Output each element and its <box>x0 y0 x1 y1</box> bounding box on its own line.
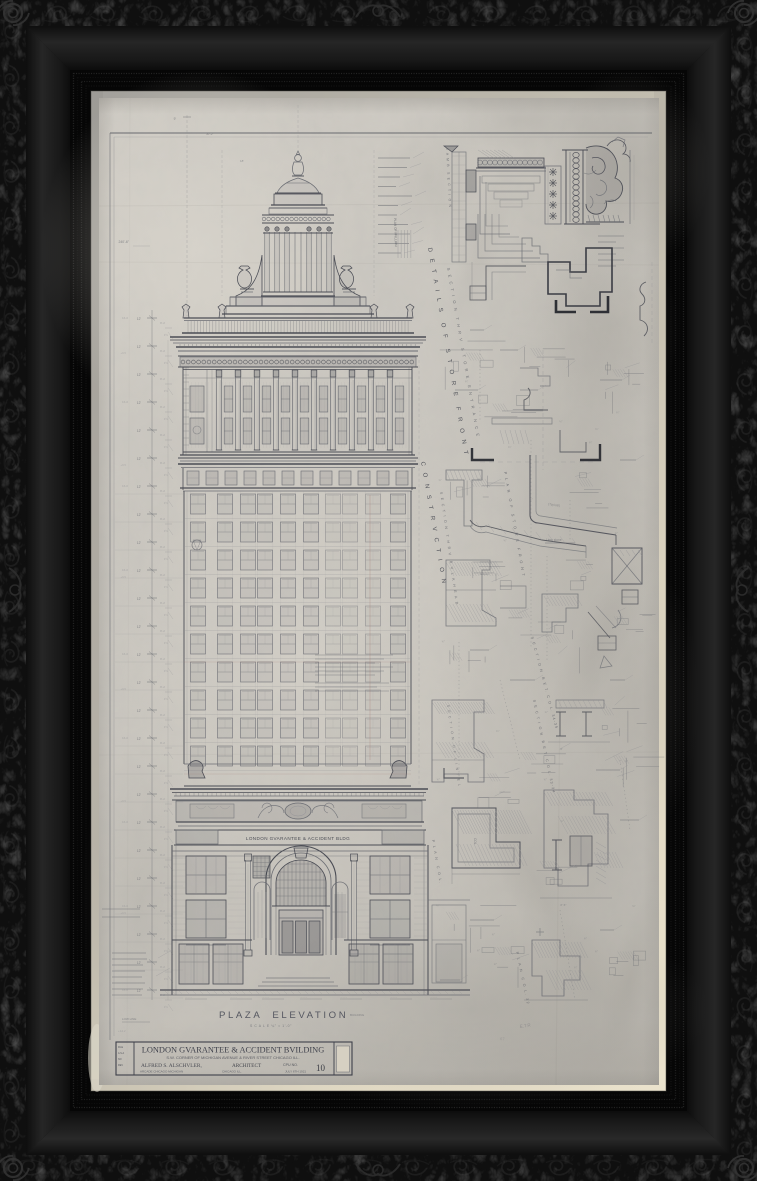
svg-text:12': 12' <box>137 373 142 377</box>
svg-text:9'-2: 9'-2 <box>160 825 165 829</box>
svg-text:9'-2: 9'-2 <box>160 405 165 409</box>
svg-text:+9.5: +9.5 <box>120 463 126 467</box>
svg-text:18': 18' <box>240 159 244 163</box>
svg-text:1½: 1½ <box>164 781 169 785</box>
svg-text:12': 12' <box>137 933 142 937</box>
svg-text:¼": ¼" <box>442 640 445 644</box>
svg-text:BUILDING: BUILDING <box>350 1013 365 1017</box>
svg-text:9'-2: 9'-2 <box>160 657 165 661</box>
svg-text:1½: 1½ <box>164 753 169 757</box>
svg-text:CPU NO.: CPU NO. <box>283 1063 298 1067</box>
svg-text:12': 12' <box>137 429 142 433</box>
svg-text:COL: COL <box>473 838 477 845</box>
svg-text:9'-2: 9'-2 <box>160 881 165 885</box>
svg-text:1½: 1½ <box>164 445 169 449</box>
svg-text:..........: .......... <box>300 996 307 999</box>
svg-text:12': 12' <box>137 877 142 881</box>
svg-text:9'-2: 9'-2 <box>160 629 165 633</box>
svg-text:12': 12' <box>137 849 142 853</box>
svg-text:+9.5: +9.5 <box>120 687 126 691</box>
svg-text:1½: 1½ <box>164 529 169 533</box>
svg-text:16-0: 16-0 <box>122 652 128 656</box>
svg-text:10: 10 <box>316 1063 326 1073</box>
svg-text:ALFRED S. ALSCHVLER,: ALFRED S. ALSCHVLER, <box>141 1063 202 1069</box>
svg-text:¼": ¼" <box>504 539 507 543</box>
svg-text:16-0: 16-0 <box>122 400 128 404</box>
svg-text:12': 12' <box>137 765 142 769</box>
svg-text:CHICAGO ILL.: CHICAGO ILL. <box>222 1070 242 1074</box>
svg-text:NO: NO <box>118 1058 122 1061</box>
svg-text:LONDON GVARANTEE & ACCIDENT BL: LONDON GVARANTEE & ACCIDENT BLDG <box>246 836 350 841</box>
svg-text:¼": ¼" <box>436 903 439 907</box>
svg-text:9'-2: 9'-2 <box>160 769 165 773</box>
svg-text:1½: 1½ <box>164 501 169 505</box>
svg-text:+9.5: +9.5 <box>120 799 126 803</box>
svg-text:S C A L E ¼" = 1'-0": S C A L E ¼" = 1'-0" <box>250 1024 292 1028</box>
svg-text:1½: 1½ <box>164 893 169 897</box>
svg-text:12': 12' <box>137 569 142 573</box>
svg-text:9': 9' <box>174 117 177 121</box>
svg-text:¼": ¼" <box>615 531 618 535</box>
svg-text:30'-2": 30'-2" <box>206 132 214 136</box>
svg-text:16-0: 16-0 <box>122 736 128 740</box>
svg-text:+9.5: +9.5 <box>120 911 126 915</box>
svg-text:9'-2: 9'-2 <box>160 797 165 801</box>
svg-text:12': 12' <box>137 821 142 825</box>
svg-text:ARCADE CHICAGO MICHIGAN: ARCADE CHICAGO MICHIGAN <box>140 1070 183 1074</box>
svg-text:16-0: 16-0 <box>122 568 128 572</box>
svg-text:12': 12' <box>137 653 142 657</box>
svg-text:9'-2: 9'-2 <box>160 461 165 465</box>
svg-text:12': 12' <box>137 457 142 461</box>
svg-text:9'-2: 9'-2 <box>160 937 165 941</box>
svg-text:9'-2: 9'-2 <box>160 909 165 913</box>
svg-text:1½: 1½ <box>164 585 169 589</box>
svg-text:1½: 1½ <box>164 333 169 337</box>
svg-text:12': 12' <box>137 541 142 545</box>
svg-text:JULY 6TH 1921: JULY 6TH 1921 <box>285 1070 306 1074</box>
svg-text:PLAZA ELEVATION: PLAZA ELEVATION <box>219 1010 348 1021</box>
svg-text:REV: REV <box>118 1064 123 1067</box>
svg-text:1½: 1½ <box>164 837 169 841</box>
svg-text:1½: 1½ <box>164 557 169 561</box>
svg-text:9'-2: 9'-2 <box>160 545 165 549</box>
svg-text:16-0: 16-0 <box>122 904 128 908</box>
svg-text:¼": ¼" <box>584 937 587 941</box>
svg-text:1½: 1½ <box>164 865 169 869</box>
svg-text:9'-2: 9'-2 <box>160 489 165 493</box>
svg-text:12': 12' <box>137 905 142 909</box>
svg-text:1½: 1½ <box>164 725 169 729</box>
svg-text:12': 12' <box>137 401 142 405</box>
svg-text:¼": ¼" <box>477 949 480 953</box>
svg-text:1½: 1½ <box>164 613 169 617</box>
svg-text:9'-2: 9'-2 <box>160 685 165 689</box>
svg-text:9'-2: 9'-2 <box>160 349 165 353</box>
svg-text:¼": ¼" <box>530 497 533 501</box>
svg-text:¼": ¼" <box>545 710 548 714</box>
svg-text:¼": ¼" <box>560 419 563 423</box>
svg-text:..........: .......... <box>340 996 347 999</box>
svg-text:1½: 1½ <box>164 697 169 701</box>
svg-text:12': 12' <box>137 513 142 517</box>
svg-text:ARCHITECT: ARCHITECT <box>232 1063 262 1069</box>
svg-text:¼": ¼" <box>439 478 442 482</box>
svg-text:9'-2: 9'-2 <box>160 377 165 381</box>
svg-text:9'-2: 9'-2 <box>160 741 165 745</box>
svg-text:240'-6": 240'-6" <box>118 240 129 244</box>
svg-text:¼": ¼" <box>633 904 636 908</box>
svg-text:1½: 1½ <box>164 669 169 673</box>
svg-text:¼": ¼" <box>574 965 577 969</box>
svg-text:..........: .......... <box>230 996 237 999</box>
svg-text:9'-2: 9'-2 <box>160 573 165 577</box>
svg-text:¼": ¼" <box>595 427 598 431</box>
svg-text:..........: .......... <box>262 996 269 999</box>
svg-text:1½: 1½ <box>164 641 169 645</box>
svg-text:..........: .......... <box>185 996 192 999</box>
svg-text:¼": ¼" <box>561 819 564 823</box>
svg-text:¼": ¼" <box>625 759 628 763</box>
svg-text:16-0: 16-0 <box>122 316 128 320</box>
svg-text:12': 12' <box>137 737 142 741</box>
svg-text:¼": ¼" <box>508 445 511 449</box>
svg-text:9'-2: 9'-2 <box>160 601 165 605</box>
svg-text:¼": ¼" <box>616 411 619 415</box>
svg-text:9'-2: 9'-2 <box>160 965 165 969</box>
svg-text:12': 12' <box>137 681 142 685</box>
svg-text:¼": ¼" <box>465 379 468 383</box>
svg-text:1½: 1½ <box>164 417 169 421</box>
svg-text:12': 12' <box>137 989 142 993</box>
svg-text:S.W. CORNER OF MICHIGAN AVENUE: S.W. CORNER OF MICHIGAN AVENUE & RIVER S… <box>166 1055 299 1060</box>
svg-text:¼": ¼" <box>595 950 598 954</box>
svg-text:16-0: 16-0 <box>122 484 128 488</box>
svg-text:9'-2: 9'-2 <box>160 321 165 325</box>
svg-text:1½: 1½ <box>164 977 169 981</box>
svg-text:12': 12' <box>137 345 142 349</box>
svg-text:1½: 1½ <box>164 361 169 365</box>
svg-text:4" 6": 4" 6" <box>560 903 566 907</box>
svg-text:¼": ¼" <box>437 778 440 782</box>
svg-text:¼": ¼" <box>544 778 547 782</box>
svg-text:¼": ¼" <box>494 962 497 966</box>
svg-text:FILE: FILE <box>118 1046 123 1049</box>
svg-text:..........: .......... <box>390 996 397 999</box>
svg-text:9'-2: 9'-2 <box>160 517 165 521</box>
svg-text:+9.5: +9.5 <box>120 575 126 579</box>
svg-text:12': 12' <box>137 793 142 797</box>
svg-text:12': 12' <box>137 625 142 629</box>
svg-text:12': 12' <box>137 597 142 601</box>
svg-text:1½: 1½ <box>164 809 169 813</box>
svg-text:1½: 1½ <box>164 389 169 393</box>
svg-text:¼": ¼" <box>492 933 495 937</box>
svg-text:1½: 1½ <box>164 921 169 925</box>
svg-text:¼": ¼" <box>478 477 481 481</box>
svg-text:LONDON GVARANTEE & ACCIDENT BV: LONDON GVARANTEE & ACCIDENT BVILDING <box>142 1046 325 1055</box>
svg-text:9'-2: 9'-2 <box>160 433 165 437</box>
svg-text:9'-2: 9'-2 <box>160 853 165 857</box>
svg-text:12': 12' <box>137 961 142 965</box>
svg-text:16-0: 16-0 <box>122 820 128 824</box>
svg-text:¼": ¼" <box>496 729 499 733</box>
svg-text:1½: 1½ <box>164 473 169 477</box>
svg-text:+9.5: +9.5 <box>120 351 126 355</box>
svg-text:+14.2: +14.2 <box>118 1029 126 1033</box>
svg-text:LOW LINE: LOW LINE <box>122 1017 136 1021</box>
svg-text:¼": ¼" <box>589 441 592 445</box>
svg-text:12': 12' <box>137 709 142 713</box>
svg-text:12': 12' <box>137 485 142 489</box>
svg-text:A.S.A: A.S.A <box>118 1052 125 1055</box>
svg-text:12': 12' <box>137 317 142 321</box>
svg-text:..........: .......... <box>430 996 437 999</box>
svg-text:9'-2: 9'-2 <box>160 713 165 717</box>
svg-text:1½: 1½ <box>164 1005 169 1009</box>
